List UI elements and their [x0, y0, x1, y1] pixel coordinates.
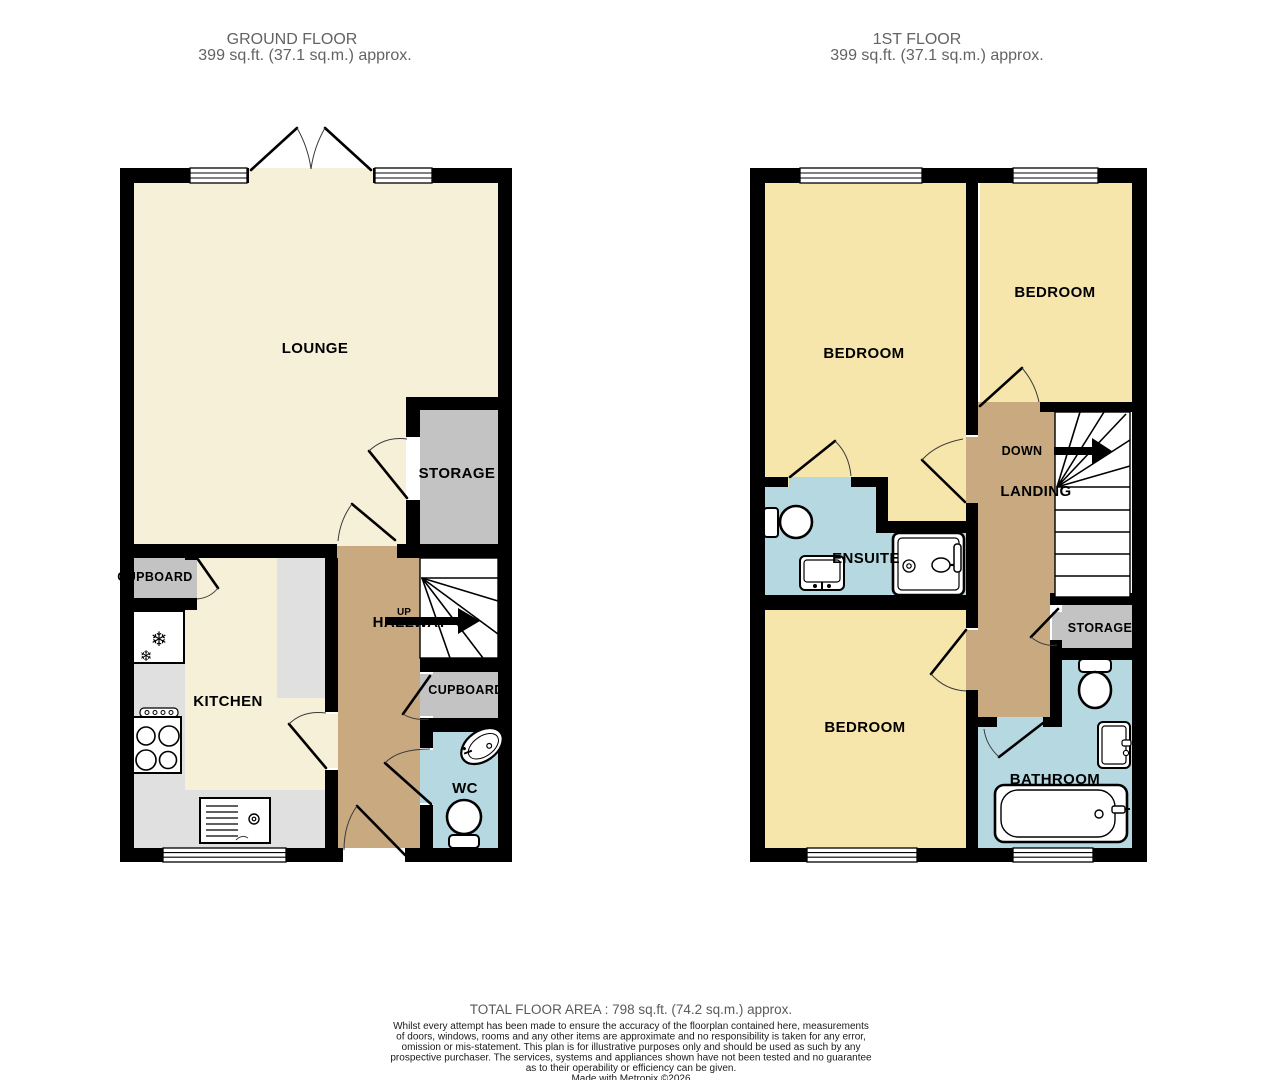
window-icon	[800, 168, 922, 183]
bathroom-toilet-icon	[1079, 659, 1111, 708]
disclaimer-line: omission or mis-statement. This plan is …	[402, 1042, 861, 1053]
french-door-left-leaf	[251, 128, 297, 170]
storage-1f-door-gap	[1052, 612, 1062, 640]
disclaimer-line: as to their operability or efficiency ca…	[526, 1063, 737, 1074]
hob-icon	[133, 708, 181, 773]
kitchen-door-gap	[325, 714, 338, 768]
kitchen-label: KITCHEN	[193, 693, 262, 710]
bathroom-door-gap	[997, 717, 1043, 727]
ground-floor-area: 399 sq.ft. (37.1 sq.m.) approx.	[198, 47, 411, 64]
window-icon	[375, 168, 432, 183]
window-icon	[190, 168, 247, 183]
kitchen-counter-right	[277, 558, 325, 698]
wc-toilet-icon	[447, 800, 481, 848]
disclaimer-line: prospective purchaser. The services, sys…	[390, 1053, 872, 1064]
french-door-opening	[249, 168, 373, 183]
bedroom-large-label: BEDROOM	[823, 345, 904, 362]
snowflake-icon: ❄	[140, 648, 153, 665]
disclaimer-line: of doors, windows, rooms and any other i…	[396, 1032, 866, 1043]
ground-floor-title: GROUND FLOOR	[227, 31, 358, 48]
landing-label: LANDING	[1000, 483, 1071, 500]
window-icon	[163, 848, 286, 862]
bedroom-large-door-gap	[966, 437, 978, 503]
first-floor-title: 1ST FLOOR	[873, 31, 962, 48]
first-floor-area: 399 sq.ft. (37.1 sq.m.) approx.	[830, 47, 1043, 64]
stairs-down-label: DOWN	[1002, 444, 1043, 458]
disclaimer-line: Whilst every attempt has been made to en…	[393, 1021, 869, 1032]
window-icon	[1013, 168, 1098, 183]
credit-line: Made with Metropix ©2026	[571, 1074, 691, 1080]
floorplan-page: GROUND FLOOR 399 sq.ft. (37.1 sq.m.) app…	[0, 0, 1263, 1080]
shower-icon	[893, 533, 964, 595]
ground-floor-stairs	[420, 558, 498, 658]
total-floor-area: TOTAL FLOOR AREA : 798 sq.ft. (74.2 sq.m…	[470, 1002, 792, 1017]
hallway-floor	[338, 546, 420, 848]
window-icon	[1013, 848, 1093, 862]
first-floor-plan: BEDROOM BEDROOM ENSUITE LANDING DOWN BED…	[750, 168, 1147, 862]
ensuite-toilet-icon	[764, 506, 812, 538]
ground-floor-title-block: GROUND FLOOR 399 sq.ft. (37.1 sq.m.) app…	[198, 31, 411, 64]
snowflake-icon: ❄	[151, 629, 168, 651]
first-floor-title-block: 1ST FLOOR 399 sq.ft. (37.1 sq.m.) approx…	[830, 31, 1043, 64]
ensuite-label: ENSUITE	[832, 550, 900, 567]
lounge-door-gap	[337, 546, 397, 558]
bedroom-bottom-door-gap	[966, 630, 978, 690]
ensuite-door-gap	[789, 477, 851, 487]
window-icon	[807, 848, 917, 862]
stairs-up-label: UP	[397, 607, 411, 618]
wc-label: WC	[452, 780, 478, 797]
cupboard-right-label: CUPBOARD	[428, 683, 503, 697]
bathtub-icon	[995, 785, 1130, 842]
bathroom-basin-icon	[1098, 722, 1131, 768]
footer: TOTAL FLOOR AREA : 798 sq.ft. (74.2 sq.m…	[390, 1002, 872, 1080]
bathroom-label: BATHROOM	[1010, 771, 1100, 788]
bedroom-bottom-label: BEDROOM	[824, 719, 905, 736]
fridge-freezer-icon: ❄ ❄	[133, 611, 184, 665]
sink-icon	[200, 798, 270, 843]
storage-gf-label: STORAGE	[419, 465, 496, 482]
cupboard-left-label: CUPBOARD	[117, 570, 192, 584]
lounge-label: LOUNGE	[282, 340, 349, 357]
ground-floor-plan: ❄ ❄	[117, 128, 512, 869]
floorplan-canvas: GROUND FLOOR 399 sq.ft. (37.1 sq.m.) app…	[0, 0, 1263, 1080]
front-door-opening	[343, 848, 405, 869]
french-door-right-leaf	[325, 128, 371, 170]
storage-1f-label: STORAGE	[1068, 621, 1132, 635]
bedroom-top-right-label: BEDROOM	[1014, 284, 1095, 301]
